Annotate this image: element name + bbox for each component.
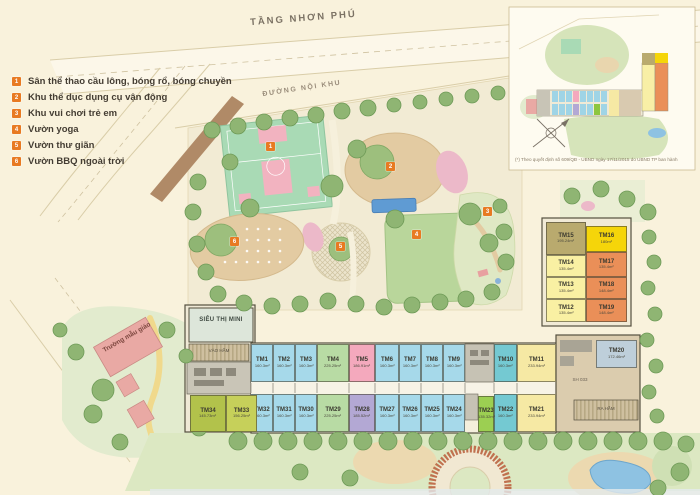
- unit-tm5: TM5186.91m²: [349, 344, 375, 382]
- unit-tm25: TM25160.3m²: [421, 394, 443, 432]
- unit-tm7: TM7160.3m²: [399, 344, 421, 382]
- unit-tm12: TM12135.4m²: [546, 299, 586, 322]
- legend-number-badge: 4: [12, 125, 21, 134]
- tree: [190, 174, 206, 190]
- tree: [641, 281, 655, 295]
- park-marker-2: 2: [386, 162, 395, 171]
- legend-number-badge: 5: [12, 141, 21, 150]
- tree: [264, 298, 280, 314]
- tree: [334, 103, 350, 119]
- tree: [308, 107, 324, 123]
- unit-tm30: TM30160.3m²: [295, 394, 317, 432]
- unit-tm21: TM21233.94m²: [517, 394, 556, 432]
- legend-label: Vườn yoga: [28, 124, 79, 135]
- unit-tm31: TM31160.3m²: [273, 394, 295, 432]
- tree: [53, 323, 67, 337]
- legend-label: Khu vui chơi trẻ em: [28, 108, 117, 119]
- unit-tm16: TM16180m²: [586, 226, 627, 252]
- legend-item: 3Khu vui chơi trẻ em: [12, 108, 232, 119]
- tree: [432, 294, 448, 310]
- tree: [348, 296, 364, 312]
- tree: [642, 385, 656, 399]
- tree: [429, 432, 447, 450]
- legend-item: 2Khu thể dục dụng cụ vận động: [12, 92, 232, 103]
- tree: [342, 470, 358, 486]
- tree: [458, 291, 474, 307]
- unit-tm17: TM17135.4m²: [586, 252, 627, 277]
- tree: [230, 118, 246, 134]
- tree: [159, 322, 175, 338]
- tree: [320, 293, 336, 309]
- supermarket-block: [189, 308, 253, 342]
- tree: [480, 234, 498, 252]
- unit-tm33: TM33156.25m²: [226, 395, 257, 432]
- tree: [241, 199, 259, 217]
- tree: [619, 191, 635, 207]
- tree: [348, 140, 366, 158]
- unit-area: 160.3m²: [498, 414, 513, 418]
- tree: [376, 299, 392, 315]
- unit-tm19: TM19148.4m²: [586, 299, 627, 322]
- tree: [92, 379, 114, 401]
- park-marker-4: 4: [412, 230, 421, 239]
- unit-area: 135.4m²: [559, 312, 574, 316]
- inset-footnote: (*) Theo quyết định số 609/QĐ - UBND ngà…: [515, 157, 691, 162]
- legend-item: 6Vườn BBQ ngoài trời: [12, 156, 232, 167]
- legend: 1Sân thể thao cầu lông, bóng rổ, bóng ch…: [12, 76, 232, 167]
- tree: [379, 432, 397, 450]
- tree: [484, 284, 500, 300]
- tree: [189, 236, 205, 252]
- tree: [254, 432, 272, 450]
- unit-tm13: TM13135.4m²: [546, 277, 586, 299]
- tree: [210, 286, 226, 302]
- tree: [404, 297, 420, 313]
- unit-area: 160.3m²: [255, 364, 270, 368]
- tree: [439, 92, 453, 106]
- unit-area: 160.3m²: [380, 364, 395, 368]
- unit-tm23: TM23135.32m²: [478, 396, 494, 432]
- unit-area: 160.3m²: [380, 414, 395, 418]
- tree: [649, 359, 663, 373]
- legend-number-badge: 6: [12, 157, 21, 166]
- unit-area: 172.46m²: [608, 355, 625, 359]
- tree: [593, 181, 609, 197]
- tree: [292, 296, 308, 312]
- tree: [640, 204, 656, 220]
- legend-label: Vườn BBQ ngoài trời: [28, 156, 124, 167]
- tree: [459, 203, 481, 225]
- tree: [496, 224, 512, 240]
- tree: [387, 98, 401, 112]
- tree: [479, 432, 497, 450]
- tree: [112, 434, 128, 450]
- tree: [642, 230, 656, 244]
- tree: [386, 210, 404, 228]
- tree: [236, 295, 252, 311]
- unit-tm10: TM10160.3m²: [494, 344, 517, 382]
- tree: [640, 333, 654, 347]
- tree: [68, 344, 84, 360]
- legend-item: 4Vườn yoga: [12, 124, 232, 135]
- tree: [185, 204, 201, 220]
- legend-item: 1Sân thể thao cầu lông, bóng rổ, bóng ch…: [12, 76, 232, 87]
- unit-tm1: TM1160.3m²: [251, 344, 273, 382]
- unit-area: 160.3m²: [498, 364, 513, 368]
- unit-area: 160.3m²: [299, 414, 314, 418]
- unit-tm34: TM34145.73m²: [190, 395, 226, 432]
- unit-area: 195.24m²: [557, 240, 574, 244]
- unit-area: 185.52m²: [353, 414, 370, 418]
- ramp-in-label: VÀO HẦM: [190, 348, 248, 353]
- tree: [654, 432, 672, 450]
- unit-area: 135.4m²: [559, 289, 574, 293]
- supermarket-label: SIÊU THỊ MINI: [190, 317, 252, 324]
- unit-area: 135.32m²: [477, 415, 494, 419]
- tree: [671, 463, 689, 481]
- unit-area: 145.73m²: [199, 415, 216, 419]
- unit-area: 160.3m²: [277, 364, 292, 368]
- legend-number-badge: 3: [12, 109, 21, 118]
- unit-tm4: TM4225.25m²: [317, 344, 349, 382]
- unit-area: 160.3m²: [425, 414, 440, 418]
- unit-area: 156.25m²: [233, 415, 250, 419]
- tree: [198, 264, 214, 280]
- tree: [304, 432, 322, 450]
- legend-label: Vườn thư giãn: [28, 140, 94, 151]
- unit-tm9: TM9160.3m²: [443, 344, 465, 382]
- unit-area: 186.91m²: [353, 364, 370, 368]
- unit-area: 160.3m²: [447, 414, 462, 418]
- unit-area: 180m²: [601, 240, 612, 244]
- tree: [413, 95, 427, 109]
- unit-area: 135.4m²: [559, 267, 574, 271]
- unit-area: 160.3m²: [403, 414, 418, 418]
- unit-area: 148.4m²: [599, 312, 614, 316]
- unit-tm3: TM3160.3m²: [295, 344, 317, 382]
- tree: [292, 464, 308, 480]
- tree: [498, 254, 514, 270]
- legend-item: 5Vườn thư giãn: [12, 140, 232, 151]
- site-plan: TẦNG NHƠN PHÚ ĐƯỜNG NỘI KHU 1Sân thể tha…: [0, 0, 700, 495]
- tree: [604, 432, 622, 450]
- park-marker-6: 6: [230, 237, 239, 246]
- tree: [493, 199, 507, 213]
- tree: [465, 89, 479, 103]
- unit-tm28: TM28185.52m²: [349, 394, 375, 432]
- tree: [360, 100, 376, 116]
- unit-area: 233.94m²: [528, 414, 545, 418]
- unit-area: 225.25m²: [324, 414, 341, 418]
- tree: [229, 432, 247, 450]
- tree: [554, 432, 572, 450]
- unit-tm26: TM26160.3m²: [399, 394, 421, 432]
- unit-tm2: TM2160.3m²: [273, 344, 295, 382]
- ramp-out-label: RA HẦM: [578, 406, 634, 411]
- tree: [282, 110, 298, 126]
- unit-area: 160.3m²: [403, 364, 418, 368]
- tree: [647, 255, 661, 269]
- inset-map: [509, 7, 695, 170]
- tree: [678, 436, 694, 452]
- tree: [491, 86, 505, 100]
- unit-area: 160.3m²: [447, 364, 462, 368]
- unit-tm8: TM8160.3m²: [421, 344, 443, 382]
- unit-tm24: TM24160.3m²: [443, 394, 465, 432]
- unit-tm14: TM14135.4m²: [546, 255, 586, 277]
- tree: [84, 405, 102, 423]
- tree: [404, 432, 422, 450]
- tree: [529, 432, 547, 450]
- unit-tm6: TM6160.3m²: [375, 344, 399, 382]
- tree: [650, 480, 666, 495]
- tree: [256, 114, 272, 130]
- unit-area: 148.4m²: [599, 289, 614, 293]
- unit-tm18: TM18148.4m²: [586, 277, 627, 299]
- unit-area: 135.4m²: [599, 266, 614, 270]
- unit-area: 160.3m²: [277, 414, 292, 418]
- tree: [579, 432, 597, 450]
- tree: [504, 432, 522, 450]
- unit-tm11: TM11233.94m²: [517, 344, 556, 382]
- unit-area: 225.25m²: [324, 364, 341, 368]
- service-label: SH 033: [562, 377, 598, 382]
- tree: [454, 432, 472, 450]
- unit-tm15: TM15195.24m²: [546, 222, 586, 255]
- unit-tm27: TM27160.3m²: [375, 394, 399, 432]
- tree: [564, 188, 580, 204]
- tree: [279, 432, 297, 450]
- tree: [648, 307, 662, 321]
- unit-tm29: TM29225.25m²: [317, 394, 349, 432]
- park-marker-1: 1: [266, 142, 275, 151]
- tree: [321, 175, 343, 197]
- unit-tm20: TM20172.46m²: [596, 340, 637, 368]
- unit-tm22: TM22160.3m²: [494, 394, 517, 432]
- tree: [354, 432, 372, 450]
- tree: [329, 432, 347, 450]
- unit-area: 233.94m²: [528, 364, 545, 368]
- tree: [629, 432, 647, 450]
- legend-number-badge: 1: [12, 77, 21, 86]
- unit-area: 160.3m²: [299, 364, 314, 368]
- park-marker-5: 5: [336, 242, 345, 251]
- park-marker-3: 3: [483, 207, 492, 216]
- tree: [650, 409, 664, 423]
- legend-label: Sân thể thao cầu lông, bóng rổ, bóng chu…: [28, 76, 232, 87]
- legend-label: Khu thể dục dụng cụ vận động: [28, 92, 167, 103]
- unit-area: 160.3m²: [425, 364, 440, 368]
- legend-number-badge: 2: [12, 93, 21, 102]
